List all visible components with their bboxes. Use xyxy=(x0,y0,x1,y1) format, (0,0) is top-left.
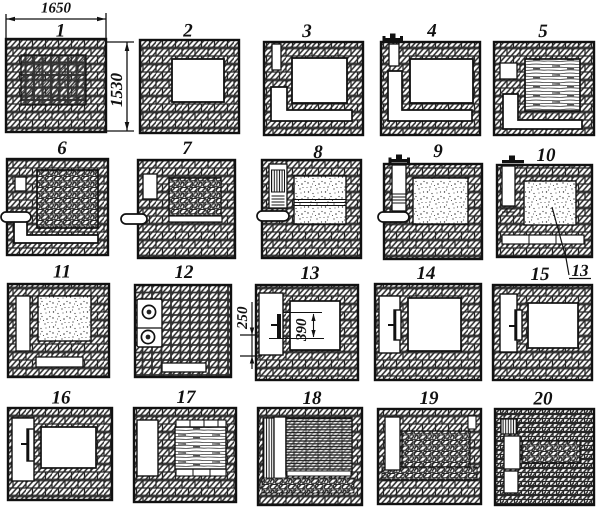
svg-text:20: 20 xyxy=(533,389,554,410)
svg-text:7: 7 xyxy=(182,138,193,159)
svg-text:9: 9 xyxy=(433,141,443,162)
svg-text:4: 4 xyxy=(426,21,437,42)
svg-text:12: 12 xyxy=(175,262,195,283)
svg-text:1650: 1650 xyxy=(41,1,72,17)
svg-text:19: 19 xyxy=(420,388,440,409)
svg-text:18: 18 xyxy=(303,388,323,409)
svg-text:5: 5 xyxy=(538,21,548,42)
svg-text:390: 390 xyxy=(294,318,310,342)
svg-text:16: 16 xyxy=(52,388,72,409)
svg-text:3: 3 xyxy=(301,21,312,42)
svg-text:13: 13 xyxy=(572,261,590,280)
svg-text:6: 6 xyxy=(57,138,67,159)
svg-text:2: 2 xyxy=(182,21,193,42)
svg-text:11: 11 xyxy=(53,262,71,283)
svg-text:250: 250 xyxy=(235,306,251,330)
svg-text:13: 13 xyxy=(301,263,320,284)
svg-text:1530: 1530 xyxy=(107,73,126,108)
svg-text:14: 14 xyxy=(417,263,436,284)
svg-text:10: 10 xyxy=(537,145,557,166)
svg-text:15: 15 xyxy=(531,264,551,285)
svg-text:17: 17 xyxy=(177,387,198,408)
